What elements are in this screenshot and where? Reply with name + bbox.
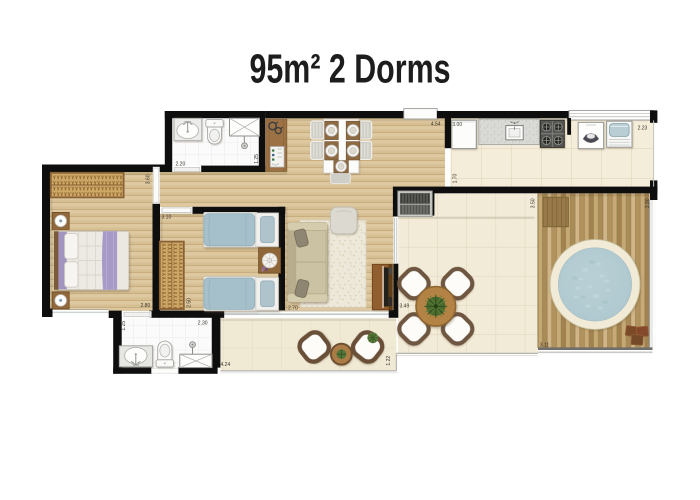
svg-text:2.20: 2.20 bbox=[176, 162, 186, 168]
svg-text:2.70: 2.70 bbox=[288, 305, 298, 311]
svg-text:2.30: 2.30 bbox=[198, 321, 208, 327]
svg-text:4.24: 4.24 bbox=[221, 362, 231, 368]
svg-text:3.10: 3.10 bbox=[162, 214, 172, 220]
svg-text:1.25: 1.25 bbox=[121, 321, 127, 331]
svg-text:3.90: 3.90 bbox=[645, 198, 651, 208]
svg-text:3.50: 3.50 bbox=[530, 198, 536, 208]
svg-text:1.70: 1.70 bbox=[452, 173, 458, 183]
svg-text:3.49: 3.49 bbox=[400, 304, 410, 310]
svg-text:3.00: 3.00 bbox=[452, 122, 462, 128]
svg-text:1.25: 1.25 bbox=[254, 154, 260, 164]
svg-text:2.50: 2.50 bbox=[186, 298, 192, 308]
svg-text:2.23: 2.23 bbox=[638, 125, 648, 131]
svg-text:95m² 2 Dorms: 95m² 2 Dorms bbox=[250, 46, 451, 92]
svg-text:3.11: 3.11 bbox=[540, 342, 550, 348]
svg-text:4.54: 4.54 bbox=[431, 121, 441, 127]
svg-text:2.80: 2.80 bbox=[141, 303, 151, 309]
svg-text:1.22: 1.22 bbox=[386, 356, 392, 366]
svg-text:3.60: 3.60 bbox=[146, 174, 152, 184]
